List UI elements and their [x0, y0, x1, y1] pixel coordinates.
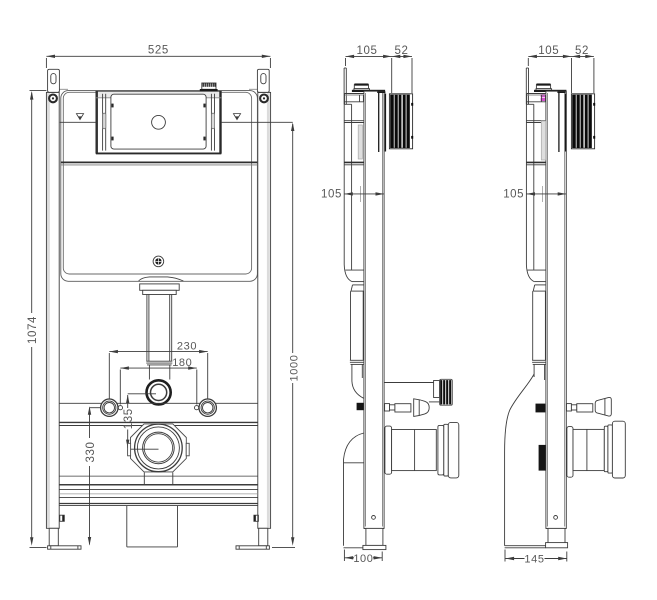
svg-text:52: 52 [395, 45, 409, 57]
svg-text:105: 105 [538, 45, 559, 57]
svg-text:525: 525 [148, 45, 169, 57]
svg-text:105: 105 [503, 189, 524, 201]
svg-text:1000: 1000 [288, 355, 300, 382]
svg-text:330: 330 [85, 442, 97, 463]
svg-text:145: 145 [524, 554, 544, 566]
svg-text:180: 180 [172, 357, 192, 369]
svg-text:52: 52 [575, 45, 589, 57]
svg-text:1074: 1074 [27, 316, 39, 344]
svg-text:230: 230 [177, 340, 197, 352]
svg-text:135: 135 [123, 408, 135, 429]
svg-text:100: 100 [353, 553, 373, 565]
svg-text:105: 105 [357, 45, 378, 57]
svg-text:105: 105 [321, 189, 342, 201]
